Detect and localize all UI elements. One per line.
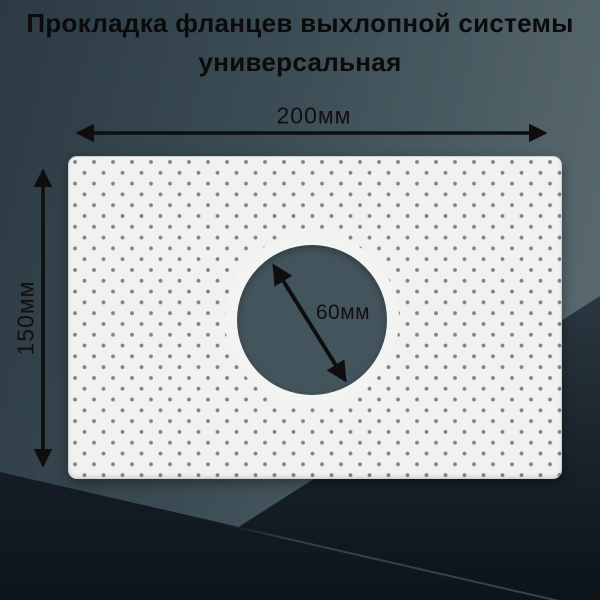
- width-dimension-label: 200мм: [277, 103, 352, 130]
- product-title: Прокладка фланцев выхлопной системы унив…: [0, 4, 600, 82]
- hole-diameter-label: 60мм: [316, 301, 370, 325]
- product-title-line2: универсальная: [0, 43, 600, 82]
- diagonal-edge-line: [0, 471, 600, 600]
- product-title-line1: Прокладка фланцев выхлопной системы: [0, 4, 600, 43]
- height-dimension-label: 150мм: [13, 281, 40, 356]
- product-card: Прокладка фланцев выхлопной системы унив…: [0, 0, 600, 600]
